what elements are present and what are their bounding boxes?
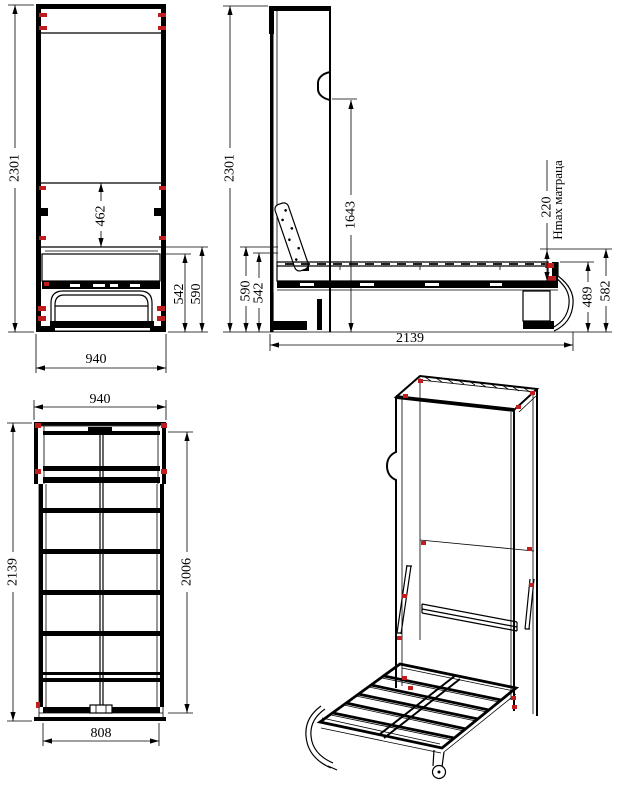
front-view: 2301 462 542 590 940 xyxy=(8,4,209,373)
side-dim-1643: 1643 xyxy=(344,201,359,229)
side-dim-height: 2301 xyxy=(223,154,238,182)
side-dim-582: 582 xyxy=(599,281,614,302)
front-dim-590: 590 xyxy=(189,284,204,305)
front-mattress xyxy=(42,254,160,281)
side-mattress-note: Hmax матраца xyxy=(550,160,565,240)
side-dim-length: 2139 xyxy=(396,331,424,346)
side-view: 2301 590 542 1643 220 Hmax матраца 489 5… xyxy=(223,6,614,351)
side-handle-recess xyxy=(318,72,330,100)
side-dim-542: 542 xyxy=(252,283,267,304)
plan-dim-frame-length: 2006 xyxy=(180,558,195,586)
plan-dim-width: 940 xyxy=(90,392,111,407)
front-dim-width: 940 xyxy=(86,352,107,367)
iso-right-posts xyxy=(514,389,537,716)
plan-view: 940 2139 2006 808 xyxy=(6,392,195,746)
plan-center-divider xyxy=(100,435,103,707)
plan-dim-frame-width: 808 xyxy=(91,726,112,741)
front-dim-542: 542 xyxy=(172,284,187,305)
side-platform-outline xyxy=(273,262,550,321)
side-dimensions: 2301 590 542 1643 220 Hmax матраца 489 5… xyxy=(223,6,614,351)
side-dim-489: 489 xyxy=(581,287,596,308)
front-dim-opening: 462 xyxy=(94,206,109,227)
front-folded-leg-arcs xyxy=(51,291,152,321)
iso-caster-axle xyxy=(438,771,441,774)
plan-fastener-marks xyxy=(35,423,167,708)
front-cabinet-solid-panels xyxy=(36,4,166,332)
plan-foot-bracket xyxy=(90,705,112,713)
iso-secondary-edges xyxy=(402,378,536,714)
iso-left-front-post xyxy=(387,397,396,688)
front-dim-height: 2301 xyxy=(8,154,23,182)
side-leg-curve xyxy=(552,262,573,331)
iso-cabinet-front-top-edge xyxy=(396,397,514,410)
technical-drawing-canvas: 2301 462 542 590 940 xyxy=(0,0,622,792)
plan-dim-length: 2139 xyxy=(6,558,21,586)
isometric-view xyxy=(306,376,537,779)
iso-head-rail xyxy=(422,604,517,631)
